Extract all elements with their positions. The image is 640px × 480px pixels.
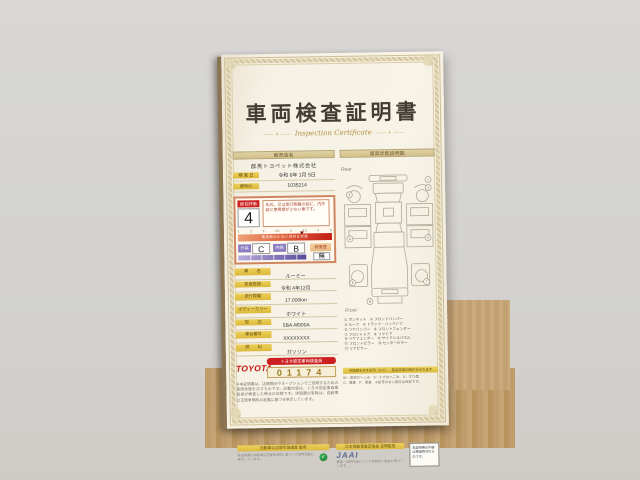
wood-table-surface-right [440,300,510,390]
evaluation-description: 年式、又は走行距離の割に、内外装に使用感が少ない車です。 [262,199,329,227]
interior-label: 内装 [273,244,286,252]
note-line: C：腐食 P：塗装 ※記号のない部分は良好です。 [343,379,438,385]
info-row: 検 査 日 令和 6年 1月 5日 [233,171,335,182]
info-row-label: 車両ID [233,183,259,189]
svg-text:1: 1 [427,178,429,182]
border-corner-flourish [429,405,445,421]
svg-text:7: 7 [426,280,428,284]
diagram-legend: ① ボンネット ② フロントバンパー③ ルーフ ④ トランク・バックドア⑤ リヤ… [344,316,437,351]
svg-text:3: 3 [348,193,350,197]
evaluation-scale-bar: 使用感の少ない良好な状態 [238,233,332,241]
scale-tick: 1 [238,229,240,233]
svg-text:5: 5 [427,236,429,240]
spec-value: 17,000km [255,297,337,304]
right-column: 車両状態説明図 Rear [340,148,439,397]
border-corner-flourish [423,55,439,71]
inspector-block: TOYOTA トヨタ認定車両検査員 01174 [236,357,338,380]
scale-marker-icon [300,231,304,234]
legend-line: ⑬ リヤピラー [345,345,437,351]
exterior-label: 外装 [238,244,251,252]
jaai-note: 検査・証明内容について定期的に監査を受けています。 [336,459,404,469]
svg-text:2: 2 [427,186,429,190]
svg-text:4: 4 [349,237,351,241]
repair-history-value: 無 [313,252,330,260]
dealer-info-rows: 検 査 日 令和 6年 1月 5日 車両ID 1035214 [233,171,335,193]
overall-evaluation-box: 総合評価 4 年式、又は走行距離の割に、内外装に使用感が少ない車です。 1233… [233,195,336,265]
footer-right: 日本自動車査定協会 定期監査 JAAI 検査・証明内容について定期的に監査を受け… [336,443,404,469]
evaluation-label: 総合評価 [237,200,259,207]
left-column: 販売店名 群馬トヨペット株式会社 検 査 日 令和 6年 1月 5日 車両ID … [233,150,339,404]
scale-tick: 3 [263,229,265,233]
certificate-title: 車両検査証明書 [222,95,444,128]
scale-tick: S [330,228,332,232]
certificate-subtitle: Inspection Certificate [222,127,444,138]
fair-trade-council-header: 自動車公正取引協議会 監修 [237,444,329,451]
spec-row: 燃 料 ガソリン [236,342,338,356]
scale-bar-text: 使用感の少ない良好な状態 [262,234,309,239]
vehicle-spec-rows: 車 名 ルーミー 初度登録 令和 4年12月 走行距離 17,000km [234,266,337,356]
symbol-note-header: 交換歴を示す記号（X X）…部品交換の跡がみられます [343,366,438,373]
spec-value: XXXXXXXX [256,335,338,342]
scale-tick: 3.5 [275,229,279,233]
dealer-section-header: 販売店名 [233,150,335,160]
border-corner-flourish [231,408,247,424]
jaai-audit-header: 日本自動車査定協会 定期監査 [336,443,404,450]
scale-tick: 4 [290,229,292,233]
fine-print: ※本証明書は、店頭掲示やオークションでご説明するための車両状態を示すものです。記… [236,381,338,404]
footer-info-box: 本証明書の内容は検査時点のものです。 [409,442,439,466]
vehicle-condition-diagram: 12345678 [342,171,436,312]
dealer-name: 群馬トヨペット株式会社 [233,161,335,171]
scale-tick: 5 [317,228,319,232]
repair-history-label: 修復歴 [310,243,331,251]
info-row-value: 1035214 [261,182,333,189]
spec-value: ガソリン [256,348,338,356]
border-corner-flourish [225,58,241,74]
inspection-certificate-document: 車両検査証明書 Inspection Certificate 販売店名 群馬トヨ… [221,51,449,428]
svg-text:6: 6 [352,281,354,285]
exterior-grade: C [252,243,270,254]
green-emblem-icon: ✓ [319,453,327,461]
svg-text:8: 8 [369,300,371,304]
inspector-number: 01174 [267,366,336,378]
scale-tick: 2 [250,229,252,233]
symbol-note-lines: W：波状のへこみ A：小さなへこみ S：すり傷C：腐食 P：塗装 ※記号のない部… [343,374,438,385]
footer-left: 自動車公正取引協議会 監修 本証明書は自動車公正競争規約に基づいて車両状態を表示… [237,444,329,462]
interior-grade: B [287,242,305,253]
info-row: 車両ID 1035214 [233,182,335,193]
diagram-area: Rear [340,156,439,397]
footer-strip: 自動車公正取引協議会 監修 本証明書は自動車公正競争規約に基づいて車両状態を表示… [237,442,439,475]
spec-value: 5BA-M900A [255,322,337,329]
photo-of-certificate: 車両検査証明書 Inspection Certificate 販売店名 群馬トヨ… [0,0,640,480]
fair-trade-note: 本証明書は自動車公正競争規約に基づいて車両状態を表示しています。 [237,452,315,462]
info-row-label: 検 査 日 [233,172,259,178]
info-row-value: 令和 6年 1月 5日 [261,171,333,179]
front-label: Front [345,308,357,314]
inspector-band: トヨタ認定車両検査員 [267,357,336,365]
grade-scale-bar [238,254,306,261]
evaluation-score: 4 [237,208,259,227]
